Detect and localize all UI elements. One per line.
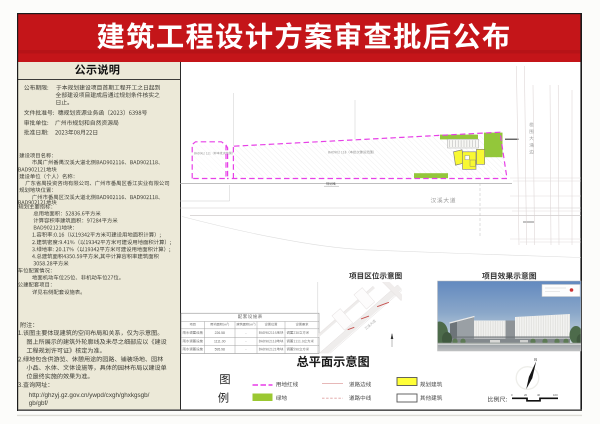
svg-text:100: 100 bbox=[553, 393, 558, 397]
svg-text:http://ghzyj.gz.gov.cn/ywpd/cx: http://ghzyj.gz.gov.cn/ywpd/cxgh/ghxkgsg… bbox=[29, 392, 150, 399]
svg-text:gb/gbf/: gb/gbf/ bbox=[29, 400, 49, 407]
svg-text:-: - bbox=[245, 340, 246, 344]
svg-text:226.58: 226.58 bbox=[215, 331, 225, 335]
svg-text:1111.00: 1111.00 bbox=[214, 340, 226, 344]
svg-text:40: 40 bbox=[537, 393, 541, 397]
svg-text:595.98: 595.98 bbox=[215, 348, 225, 352]
svg-text:20: 20 bbox=[524, 393, 528, 397]
svg-text:-: - bbox=[245, 331, 246, 335]
svg-text:-: - bbox=[245, 348, 246, 352]
